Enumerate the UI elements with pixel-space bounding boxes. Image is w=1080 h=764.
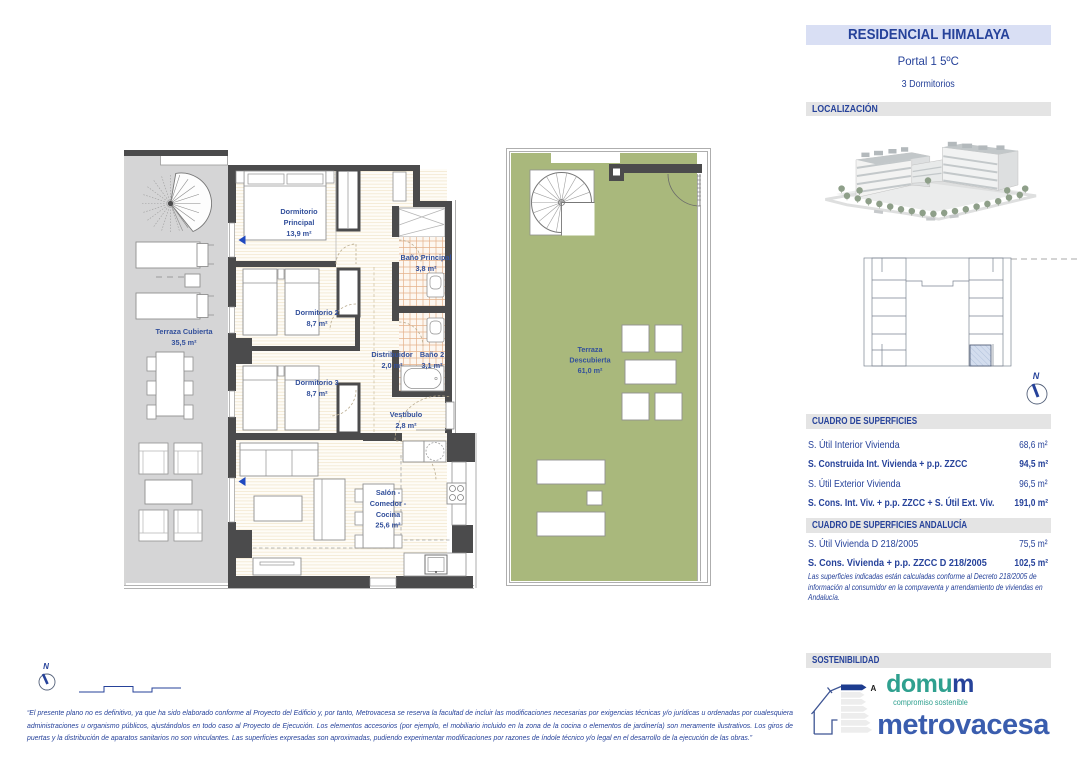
svg-text:N: N — [1033, 371, 1040, 381]
svg-text:N: N — [43, 662, 49, 671]
svg-text:Baño 23,1 m²: Baño 23,1 m² — [420, 350, 444, 370]
